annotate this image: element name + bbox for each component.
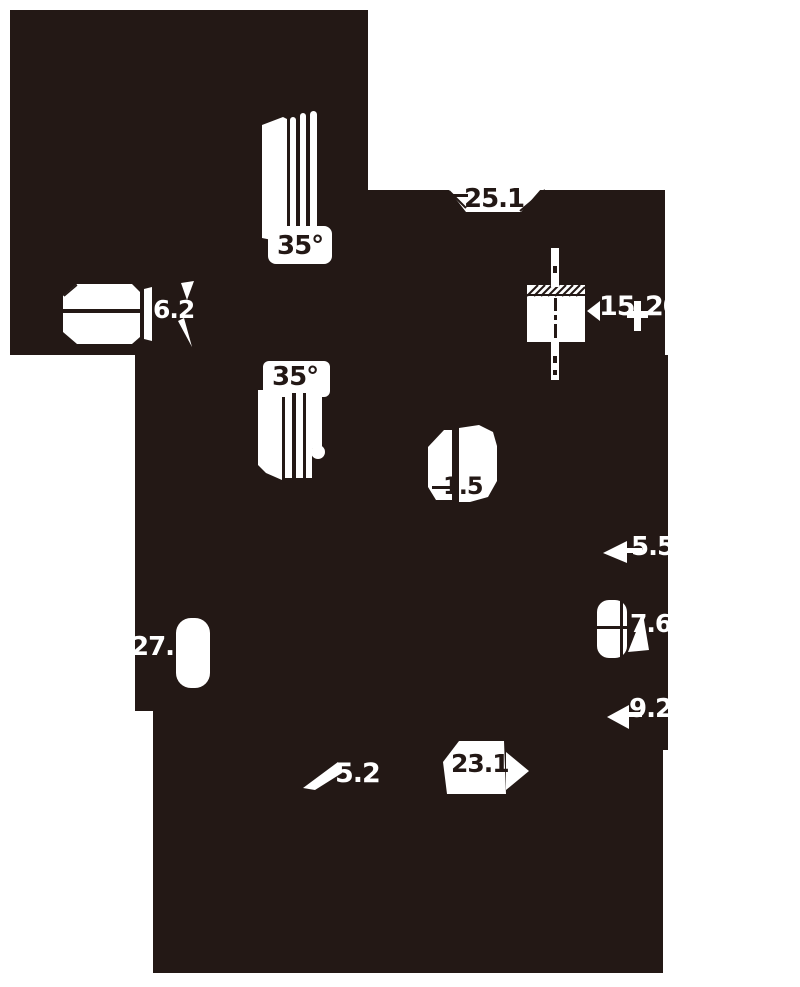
angle-label-35-top: 35° xyxy=(277,233,323,259)
dim-label-9-2: 9.2 xyxy=(629,696,672,722)
drawing-canvas: 25.1 35° 6.2 15 20° 35° 1.5 27.5 5.5 7.6… xyxy=(0,0,800,987)
angle-label-35-mid: 35° xyxy=(272,364,318,390)
body-midline xyxy=(63,309,140,313)
dim-label-15: 15 xyxy=(599,293,635,320)
slot-centerline xyxy=(452,428,459,477)
drawing-silhouette xyxy=(10,10,668,973)
dim-label-5-2: 5.2 xyxy=(335,760,380,787)
dim-label-7-6: 7.6 xyxy=(630,611,671,636)
dim-extension-strip xyxy=(144,287,152,341)
dim-label-27-5: 27.5 xyxy=(131,634,191,660)
dim-label-6-2: 6.2 xyxy=(153,297,194,322)
dim-label-1-5: 1.5 xyxy=(443,474,483,498)
dim-label-23-1: 23.1 xyxy=(451,751,509,776)
dim-label-25-1: 25.1 xyxy=(464,186,524,212)
dim-label-5-5: 5.5 xyxy=(631,534,674,560)
angle-label-20: 20° xyxy=(645,293,693,320)
technical-drawing-artwork xyxy=(0,0,800,987)
